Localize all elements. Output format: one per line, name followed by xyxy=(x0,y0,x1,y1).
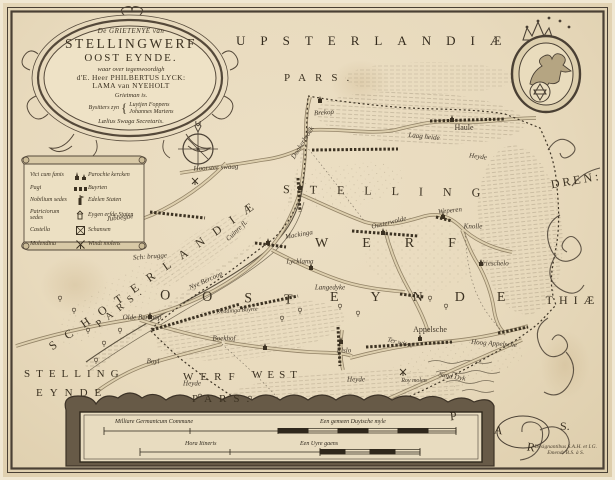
church-pair-icon xyxy=(72,170,88,181)
place-label: Heyde xyxy=(183,381,201,388)
cartouche-line: LAMA van NYEHOLT xyxy=(44,82,218,91)
title-cartouche: De GRIETENYE van STELLINGWERF OOST EYNDE… xyxy=(44,27,218,126)
legend-latin: Pagi xyxy=(30,185,72,191)
place-label: Boyl xyxy=(147,359,160,366)
region-label-west-eynde: EYNDE xyxy=(36,388,108,399)
bysitter-name: Luytjen Foppens xyxy=(129,102,173,109)
signature-line2: Emend: B.S. à S. xyxy=(534,450,597,456)
place-label: Appelsche xyxy=(413,326,447,334)
coat-of-arms xyxy=(512,17,580,112)
cartouche-line: De GRIETENYE van xyxy=(44,27,218,35)
region-label-pars-a: A xyxy=(493,424,503,437)
place-label: Elslo xyxy=(337,348,351,355)
place-label: Haule xyxy=(454,124,473,132)
cartouche-secretary: Lælius Swaga Secretaris. xyxy=(44,118,218,125)
cartouche-subtitle: OOST EYNDE. xyxy=(44,52,218,65)
cartouche-bysitters: Bysitters zyn { Luytjen Foppens Johannes… xyxy=(44,101,218,116)
place-label: Olde Bercoop xyxy=(123,315,162,322)
place-label: Lycklama xyxy=(286,259,313,266)
region-label-werf: WERF xyxy=(315,237,490,251)
legend-dutch: Parochie kercken xyxy=(88,172,140,178)
windmill-icon xyxy=(72,239,88,250)
place-label: Heyde xyxy=(347,377,365,384)
cartouche-line: Grietman is. xyxy=(44,92,218,99)
scale-cartouche xyxy=(65,391,549,466)
bysitters-label: Bysitters zyn xyxy=(89,105,120,112)
legend-latin: Patriciorum sedes xyxy=(30,209,72,222)
legend-dutch: Schansen xyxy=(88,227,140,233)
noble-seat-icon xyxy=(72,195,88,206)
region-label-eynde: EYNDE xyxy=(330,291,537,305)
region-label-stelling: STELLING xyxy=(283,183,501,199)
cartouche-title: STELLINGWERF xyxy=(44,36,218,52)
place-label: Roy molen xyxy=(401,378,427,384)
region-label-west-pars: PARS. xyxy=(192,394,256,405)
region-label-upsterlandiae-pars: PARS. xyxy=(284,73,358,84)
scale-bar1-left-label: Milliare Germanicum Commune xyxy=(115,419,193,425)
scale-bar2-right-label: Een Uyre gaens xyxy=(300,441,338,447)
region-label-pars-s: S. xyxy=(560,420,570,432)
legend-dutch: Buyrten xyxy=(88,185,140,191)
legend-latin: Molendina xyxy=(30,241,72,247)
place-label: Vrieschelo xyxy=(479,261,508,268)
region-label-west-stelling: STELLING xyxy=(24,369,125,380)
place-label: Knolle xyxy=(464,224,483,231)
region-label-west-west: WEST xyxy=(252,370,302,381)
place-label: Langedyke xyxy=(315,285,345,292)
patrician-seat-icon xyxy=(72,210,88,220)
legend-latin: Castella xyxy=(30,227,72,233)
region-label-drenthiae-2: THIÆ xyxy=(546,294,601,306)
region-label-upsterlandiae: UPSTERLANDIÆ xyxy=(236,34,516,47)
antique-map-page: De GRIETENYE van STELLINGWERF OOST EYNDE… xyxy=(0,0,615,480)
bysitter-name: Johannes Martens xyxy=(129,109,173,116)
compass-rose xyxy=(178,121,218,166)
legend: Vici cum fanis Parochie kercken Pagi Buy… xyxy=(30,170,140,250)
fort-icon xyxy=(72,225,88,236)
hamlet-icon xyxy=(72,184,88,192)
engraver-signature: Designantibus S.A.H. et I.G. Emend: B.S.… xyxy=(534,444,597,456)
legend-dutch: Edelen Staten xyxy=(88,197,140,203)
legend-dutch: Windt molens xyxy=(88,241,140,247)
place-label: Boekhof xyxy=(213,336,236,343)
region-label-pars-p: P xyxy=(449,410,457,423)
legend-latin: Nobilium sedes xyxy=(30,197,72,203)
legend-latin: Vici cum fanis xyxy=(30,172,72,178)
scale-bar2-left-label: Hora Itineris xyxy=(185,441,217,447)
scale-bar1-right-label: Een gemeen Duytsche myle xyxy=(320,419,386,425)
place-label: Brekop xyxy=(314,109,334,117)
brace-glyph: { xyxy=(121,101,127,116)
